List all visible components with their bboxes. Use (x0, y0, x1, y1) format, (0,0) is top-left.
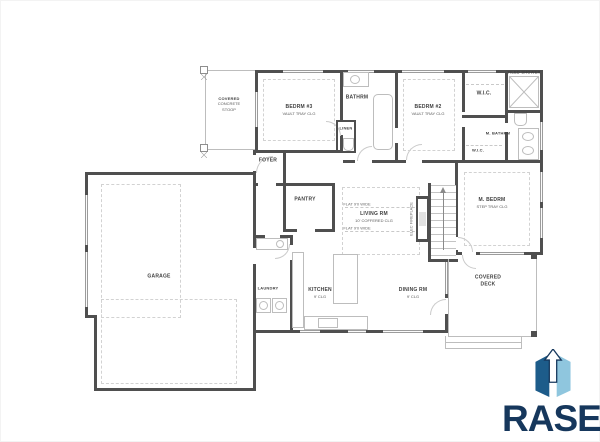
room-label-linen: LINEN (340, 125, 353, 130)
room-label-covered-stoop: COVERED CONCRETE STOOP (218, 96, 240, 112)
window (283, 70, 323, 73)
room-label-living-rm: LIVING RM 10' COFFERED CLG (355, 211, 393, 223)
room-name: FOYER (259, 158, 277, 164)
room-sub: 10' COFFERED CLG (355, 218, 393, 223)
room-label-wic2: W.I.C. (472, 147, 484, 152)
deck-step (445, 342, 522, 343)
room-name: LAUNDRY (258, 285, 279, 290)
deck-post (531, 253, 537, 259)
washer-door-icon (259, 301, 268, 310)
label-line: COVERED (475, 274, 501, 280)
sink (522, 132, 534, 141)
floor-plan-sheet: COVERED CONCRETE STOOP BEDRM #3 VAULT TR… (0, 0, 600, 442)
fireplace-label: ELEC FIREPLACE (409, 202, 414, 236)
deck-step (445, 336, 446, 349)
garage-dashed-outline (101, 299, 237, 384)
room-label-wic1: W.I.C. (477, 91, 492, 98)
garage-door (85, 252, 88, 307)
room-name: W.I.C. (472, 147, 484, 152)
toilet (343, 138, 354, 151)
room-name: KITCHEN (308, 287, 332, 293)
bathtub (373, 94, 393, 150)
room-label-bedrm2: BEDRM #2 VAULT TRAY CLG (412, 104, 445, 116)
shower-x-icon (509, 76, 539, 108)
wall-segment (422, 160, 543, 163)
wall-segment (505, 132, 508, 162)
room-label-m-bedrm: M. BEDRM STEP TRAY CLG (476, 197, 507, 209)
wall-segment (505, 115, 508, 123)
room-label-dining-rm: DINING RM 9' CLG (399, 287, 427, 299)
window (540, 122, 543, 150)
room-name: BATHRM (346, 95, 369, 101)
wall-segment (253, 150, 256, 390)
window (540, 208, 543, 238)
stoop-edge (205, 70, 255, 71)
deck-edge (448, 336, 537, 337)
closet-rod (466, 84, 504, 85)
window (383, 330, 423, 333)
stair-direction-line (443, 192, 444, 250)
porch-post (200, 144, 208, 152)
room-label-garage: GARAGE (147, 274, 170, 281)
deck-step (521, 336, 522, 349)
wall-segment (332, 183, 335, 232)
room-name: M. BEDRM (479, 197, 506, 203)
wall-segment (290, 235, 293, 245)
room-label-kitchen: KITCHEN 9' CLG (308, 287, 332, 299)
fireplace-box (419, 212, 426, 226)
door-swing (357, 146, 372, 161)
window (540, 172, 543, 202)
room-label-bedrm3: BEDRM #3 VAULT TRAY CLG (283, 104, 316, 116)
window (348, 330, 366, 333)
wall-segment (428, 259, 458, 262)
deck-post (531, 331, 537, 337)
wall-segment (94, 315, 97, 391)
room-sub: STEP TRAY CLG (476, 204, 507, 209)
deck-edge (536, 255, 537, 337)
kitchen-counter (292, 252, 304, 328)
wall-segment (283, 153, 286, 183)
room-name: TILED SHOWER (507, 69, 540, 74)
room-label-covered-deck: COVERED DECK (475, 274, 501, 288)
window (255, 92, 258, 127)
stoop-edge (205, 149, 255, 150)
wall-segment (94, 388, 256, 391)
deck-edge (448, 255, 449, 337)
room-label-tiled-shower: TILED SHOWER (507, 69, 540, 74)
label-line: DECK (475, 281, 501, 288)
window (468, 70, 496, 73)
room-name: W.I.C. (477, 91, 492, 97)
room-name: BEDRM #3 (286, 104, 313, 110)
wall-segment (315, 229, 335, 232)
wall-segment (395, 70, 398, 128)
wall-segment (343, 160, 355, 163)
closet-rod (466, 145, 502, 146)
door-swing (430, 299, 446, 315)
wall-segment (283, 229, 297, 232)
room-label-bathrm: BATHRM (346, 95, 369, 102)
room-label-foyer: FOYER (259, 158, 277, 165)
label-line: CONCRETE (218, 101, 240, 106)
sink (350, 75, 360, 84)
sink (522, 146, 534, 155)
room-label-pantry: PANTRY (294, 197, 315, 204)
room-name: DINING RM (399, 287, 427, 293)
logo-box-right-face (557, 355, 571, 397)
stoop-edge (205, 70, 206, 150)
door-opening (253, 248, 256, 264)
toilet (514, 113, 527, 126)
dryer-door-icon (275, 301, 284, 310)
wall-segment (255, 150, 343, 153)
stair-arrow-icon (440, 187, 446, 193)
room-name: BEDRM #2 (415, 104, 442, 110)
wall-segment (462, 115, 508, 118)
room-sub: 9' CLG (308, 294, 332, 299)
logo-box-left-face (535, 355, 549, 397)
window (402, 70, 444, 73)
room-name: LINEN (340, 125, 353, 130)
wall-segment (462, 70, 465, 112)
sink (276, 240, 284, 248)
wall-segment (253, 183, 258, 186)
room-name: LIVING RM (360, 211, 388, 217)
kitchen-island (333, 254, 358, 304)
rase-logo-box-icon (534, 349, 572, 397)
label-line: STOOP (218, 107, 240, 112)
door-swing (462, 255, 476, 269)
room-label-m-bathrm: M. BATHRM (486, 130, 510, 135)
deck-step (445, 348, 522, 349)
post-x-icon (201, 74, 207, 80)
garage-door (85, 195, 88, 245)
wall-segment (372, 160, 406, 163)
wall-segment (283, 183, 286, 232)
room-name: PANTRY (294, 197, 315, 203)
label-line: COVERED (218, 96, 239, 101)
rase-logo-wordmark: RASE (502, 398, 600, 440)
range (318, 318, 338, 328)
room-sub: VAULT TRAY CLG (412, 111, 445, 116)
wall-segment (462, 127, 465, 162)
garage-dashed-outline (101, 184, 181, 318)
porch-post (200, 66, 208, 74)
room-sub: 9' CLG (399, 294, 427, 299)
wall-segment (85, 172, 256, 175)
room-label-laundry: LAUNDRY (258, 285, 279, 290)
ceiling-note: FLAT 9'0 WIDE (343, 226, 370, 231)
room-sub: VAULT TRAY CLG (283, 111, 316, 116)
window (300, 330, 320, 333)
window (480, 252, 524, 255)
ceiling-note: FLAT 9'0 WIDE (343, 202, 370, 207)
post-x-icon (201, 152, 207, 158)
room-name: GARAGE (147, 274, 170, 280)
room-name: M. BATHRM (486, 130, 510, 135)
floor-plan: COVERED CONCRETE STOOP BEDRM #3 VAULT TR… (0, 0, 600, 442)
